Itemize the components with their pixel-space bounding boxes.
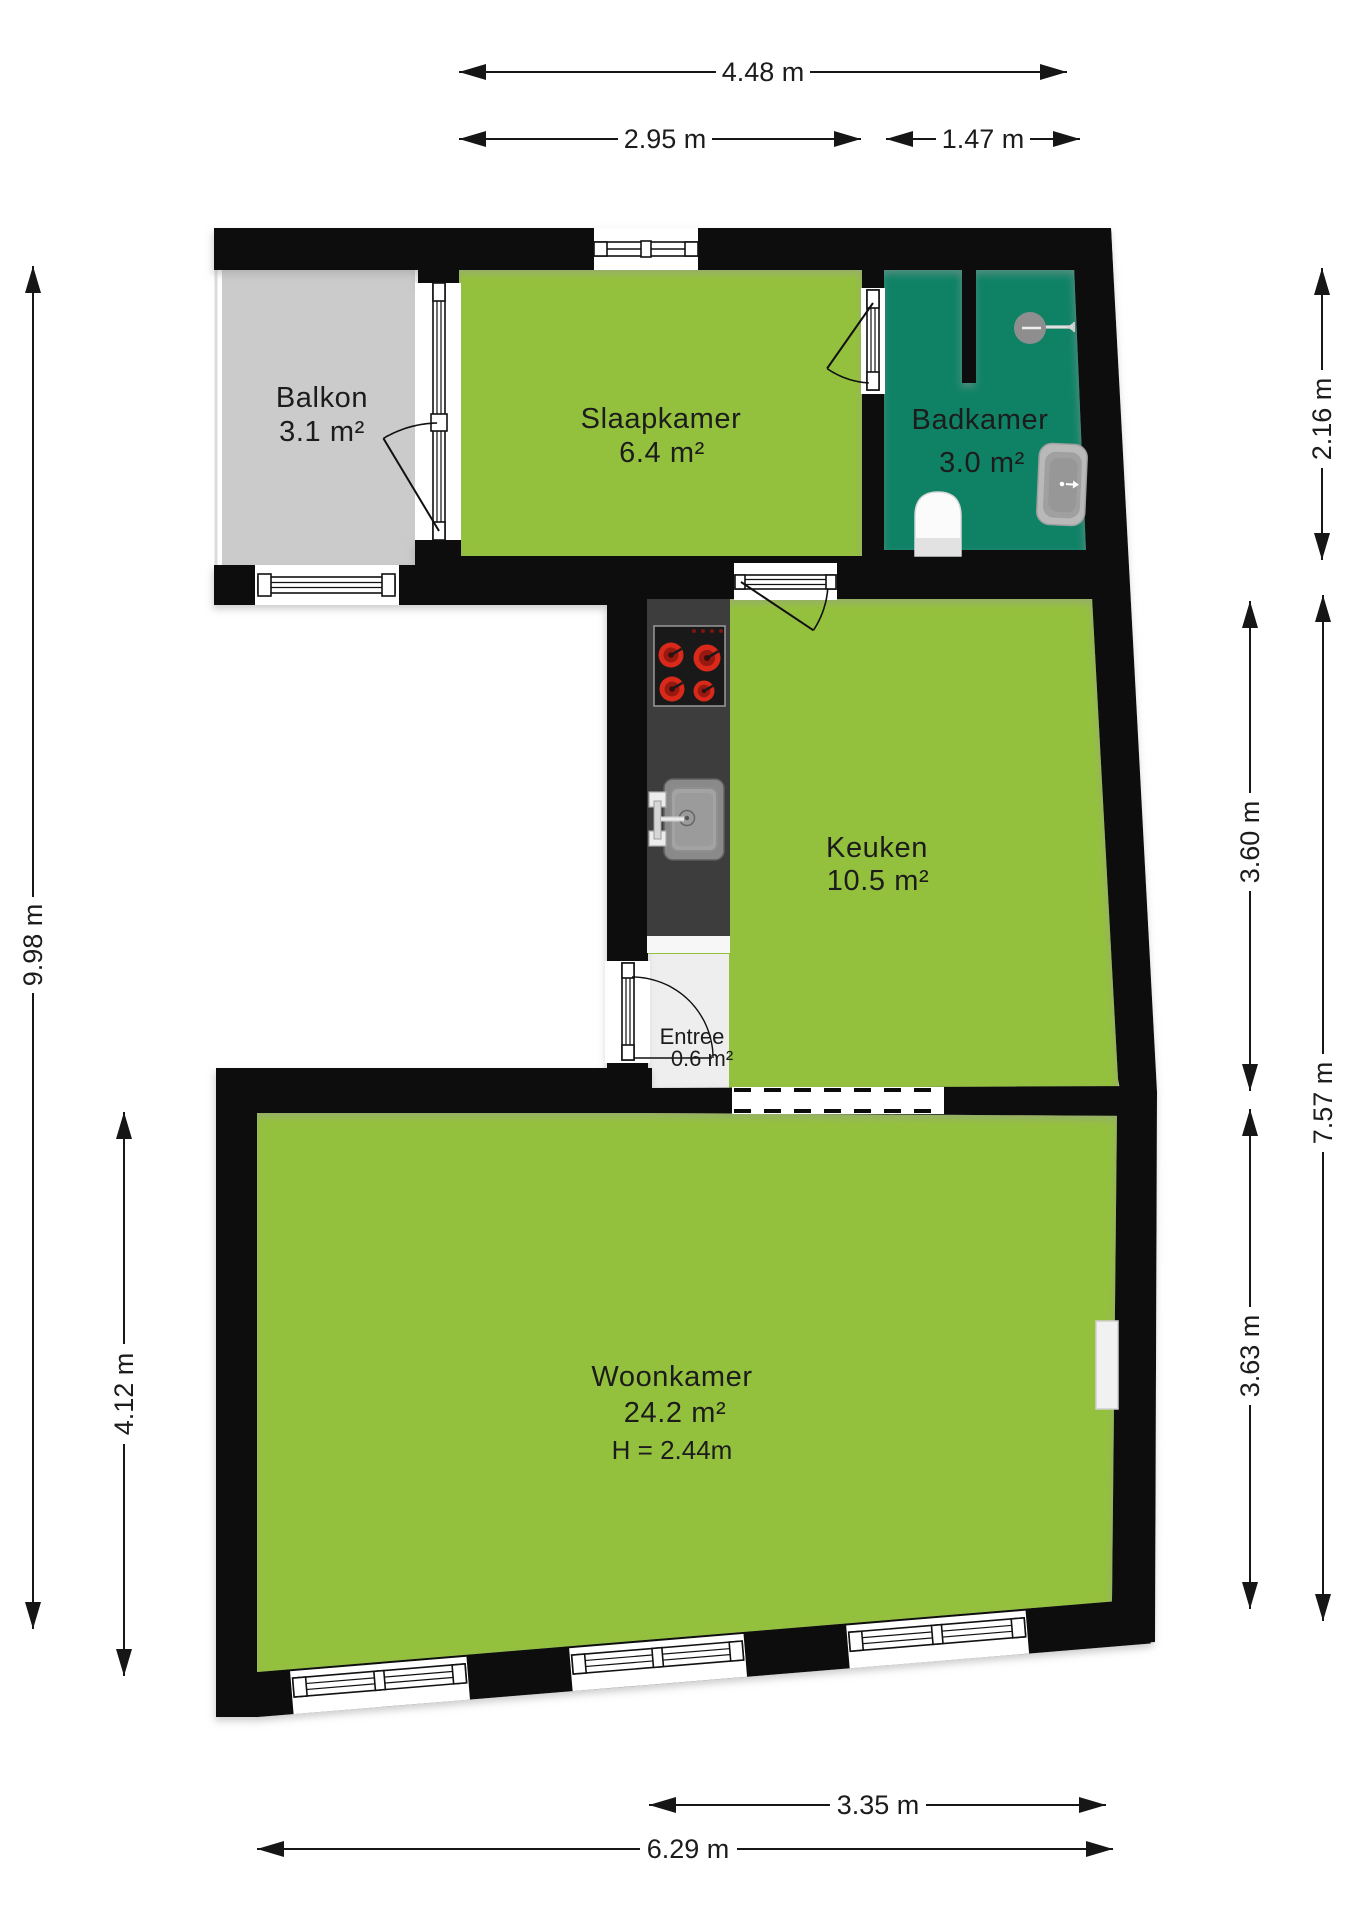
svg-text:9.98 m: 9.98 m [18,904,48,987]
svg-text:4.48 m: 4.48 m [722,57,805,87]
svg-text:3.1 m²: 3.1 m² [279,416,365,448]
svg-text:3.63 m: 3.63 m [1235,1315,1265,1398]
svg-text:3.60 m: 3.60 m [1235,801,1265,884]
svg-text:2.95 m: 2.95 m [624,124,707,154]
svg-text:Woonkamer: Woonkamer [591,1361,752,1393]
svg-text:2.16 m: 2.16 m [1307,378,1337,461]
svg-text:Badkamer: Badkamer [912,404,1049,436]
svg-text:6.4 m²: 6.4 m² [619,437,705,469]
svg-text:0.6 m²: 0.6 m² [671,1046,733,1071]
svg-text:4.12 m: 4.12 m [109,1353,139,1436]
svg-text:Keuken: Keuken [826,832,928,864]
svg-text:10.5 m²: 10.5 m² [827,865,930,897]
svg-text:Balkon: Balkon [276,382,368,414]
svg-text:1.47 m: 1.47 m [942,124,1025,154]
svg-text:6.29 m: 6.29 m [647,1834,730,1864]
svg-text:3.35 m: 3.35 m [837,1790,920,1820]
svg-text:7.57 m: 7.57 m [1308,1062,1338,1145]
svg-text:24.2 m²: 24.2 m² [624,1397,727,1429]
svg-text:H = 2.44m: H = 2.44m [612,1435,733,1465]
svg-text:3.0 m²: 3.0 m² [939,447,1025,479]
svg-text:Slaapkamer: Slaapkamer [581,403,742,435]
